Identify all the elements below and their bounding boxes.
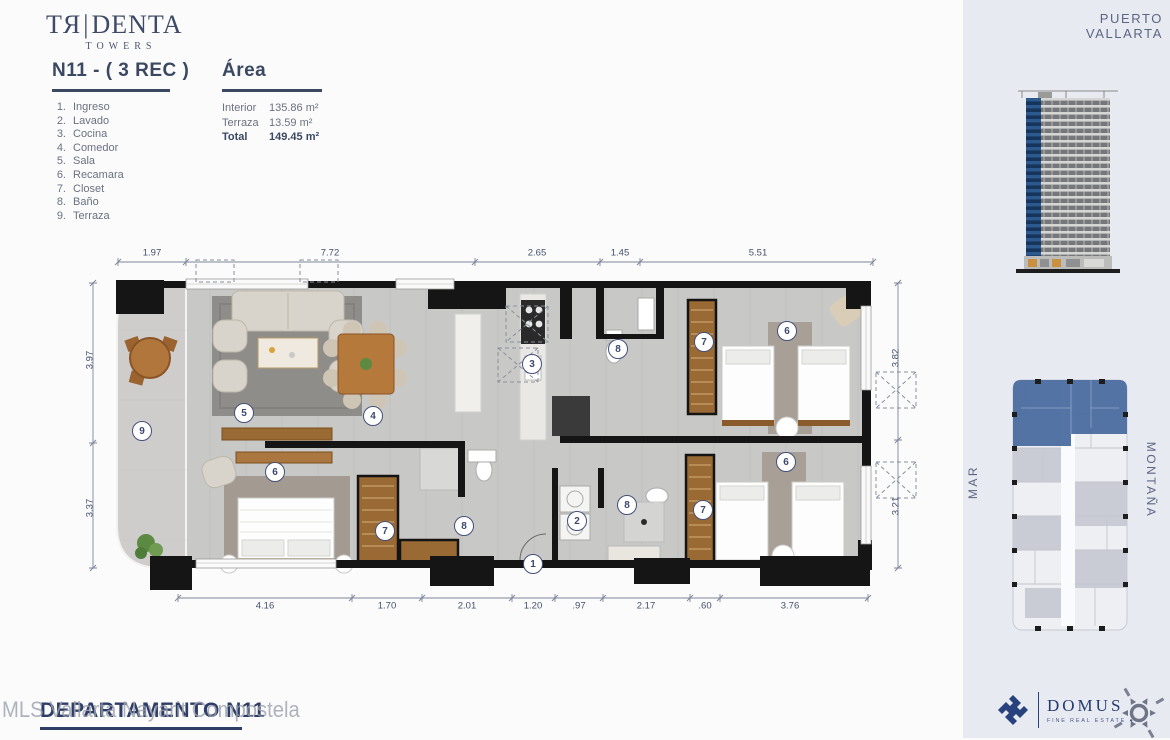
- room-legend-item: 8. Baño: [52, 196, 124, 210]
- room-label: Lavado: [73, 115, 109, 129]
- area-title-rule: [222, 89, 322, 92]
- area-row-label: Interior: [222, 101, 269, 116]
- sea-side-label: MAR: [966, 465, 980, 499]
- area-row: Interior 135.86 m²: [222, 101, 319, 116]
- room-number: 2.: [52, 115, 66, 129]
- room-legend-list: 1. Ingreso 2. Lavado 3. Cocina 4. Comedo…: [52, 101, 124, 223]
- brand-logo-text: TЯ|DENTA: [46, 10, 236, 40]
- area-row-value: 13.59 m²: [269, 116, 312, 131]
- room-label: Closet: [73, 183, 104, 197]
- room-legend-item: 3. Cocina: [52, 128, 124, 142]
- floor-plan-drawing: [35, 240, 935, 630]
- room-legend-item: 4. Comedor: [52, 142, 124, 156]
- room-number: 7.: [52, 183, 66, 197]
- room-legend-item: 2. Lavado: [52, 115, 124, 129]
- sheet-label-underline: [40, 727, 242, 730]
- area-row-label: Terraza: [222, 116, 269, 131]
- area-row-value: 135.86 m²: [269, 101, 319, 116]
- tower-elevation: [1008, 84, 1128, 286]
- mountain-side-label: MONTAÑA: [1144, 442, 1158, 519]
- room-label: Ingreso: [73, 101, 110, 115]
- room-label: Recamara: [73, 169, 124, 183]
- room-label: Cocina: [73, 128, 107, 142]
- unit-title: N11 - ( 3 REC ): [52, 60, 189, 82]
- key-plan: [995, 368, 1145, 643]
- room-label: Sala: [73, 155, 95, 169]
- room-number: 4.: [52, 142, 66, 156]
- area-table: Interior 135.86 m² Terraza 13.59 m² Tota…: [222, 101, 319, 145]
- room-number: 1.: [52, 101, 66, 115]
- room-number: 9.: [52, 210, 66, 224]
- room-number: 5.: [52, 155, 66, 169]
- brand-logo-sub: TOWERS: [46, 41, 196, 52]
- domus-pinwheel-icon: [996, 693, 1030, 727]
- unit-title-rule: [52, 89, 170, 92]
- mls-watermark: MLS Vallarta Nayarit Compostela: [2, 697, 300, 723]
- area-row-label: Total: [222, 130, 269, 145]
- room-label: Baño: [73, 196, 99, 210]
- room-legend-item: 9. Terraza: [52, 210, 124, 224]
- area-title: Área: [222, 60, 322, 82]
- room-label: Comedor: [73, 142, 118, 156]
- brand-logo: TЯ|DENTA TOWERS: [46, 10, 236, 52]
- area-row: Total 149.45 m²: [222, 130, 319, 145]
- room-number: 6.: [52, 169, 66, 183]
- room-legend-item: 6. Recamara: [52, 169, 124, 183]
- room-number: 8.: [52, 196, 66, 210]
- area-block: Área: [222, 60, 322, 92]
- room-legend-item: 7. Closet: [52, 183, 124, 197]
- area-row: Terraza 13.59 m²: [222, 116, 319, 131]
- room-legend-item: 5. Sala: [52, 155, 124, 169]
- room-number: 3.: [52, 128, 66, 142]
- compostela-mark-icon: [1112, 686, 1166, 740]
- location-label: PUERTO VALLARTA: [1025, 11, 1163, 41]
- unit-title-block: N11 - ( 3 REC ): [52, 60, 189, 92]
- room-legend-item: 1. Ingreso: [52, 101, 124, 115]
- area-row-value: 149.45 m²: [269, 130, 319, 145]
- domus-divider: [1038, 692, 1039, 728]
- room-label: Terraza: [73, 210, 110, 224]
